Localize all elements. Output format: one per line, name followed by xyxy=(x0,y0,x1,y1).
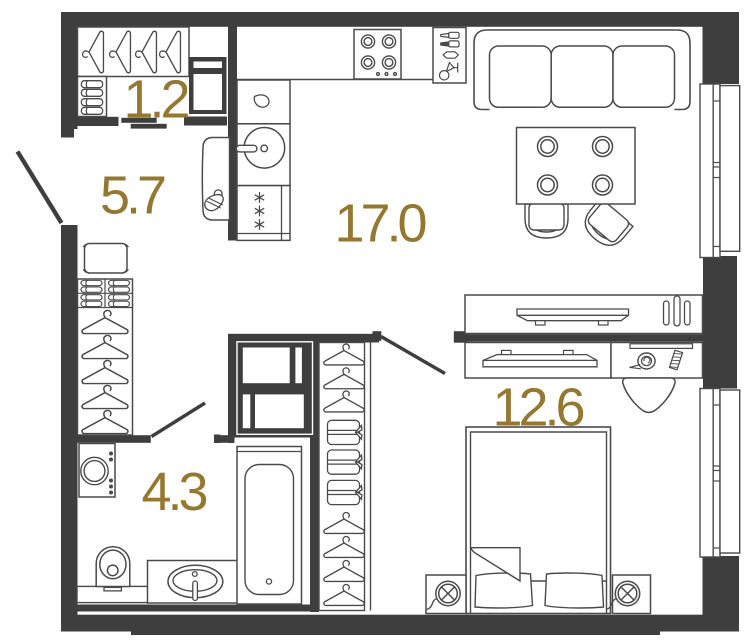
svg-text:17.0: 17.0 xyxy=(334,194,425,254)
svg-text:1.2: 1.2 xyxy=(123,70,188,130)
svg-text:5.7: 5.7 xyxy=(100,166,165,226)
svg-text:4.3: 4.3 xyxy=(141,462,206,522)
